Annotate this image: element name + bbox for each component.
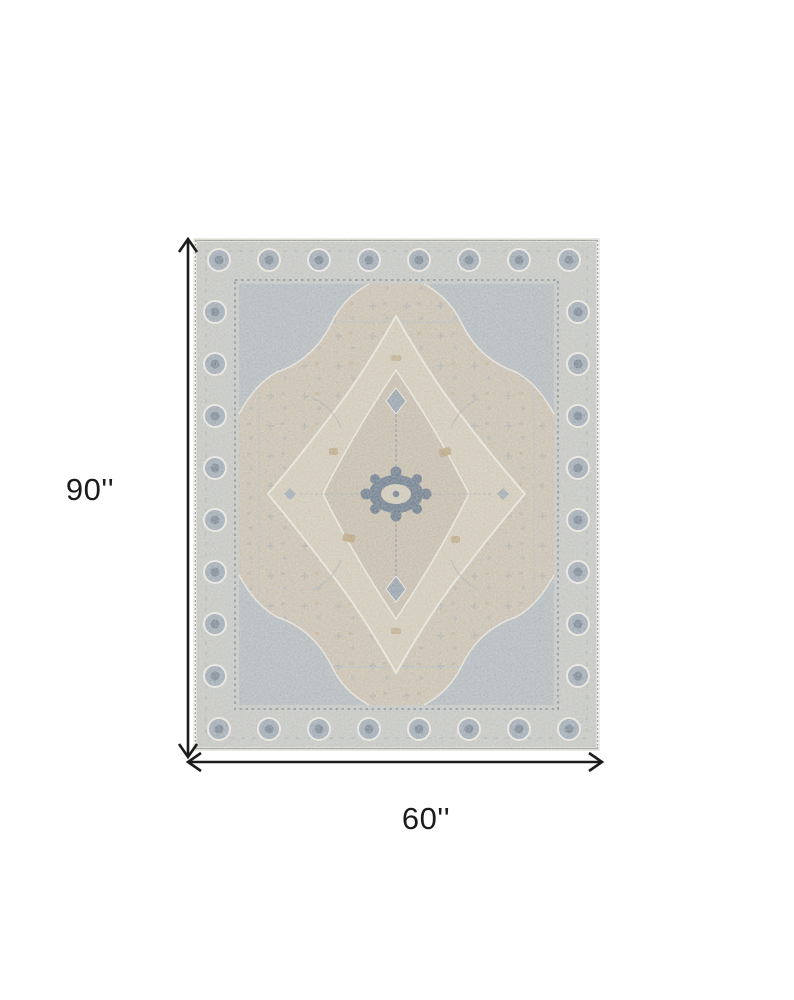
- width-dimension-arrow: [182, 744, 612, 780]
- height-label: 90'': [38, 471, 142, 509]
- dimension-diagram: 90'' 60'': [0, 0, 794, 1000]
- distress-texture: [193, 238, 600, 751]
- rug-graphic: [193, 238, 600, 751]
- height-dimension-arrow: [170, 230, 206, 770]
- rug-image: [193, 238, 600, 751]
- width-label: 60'': [374, 800, 478, 838]
